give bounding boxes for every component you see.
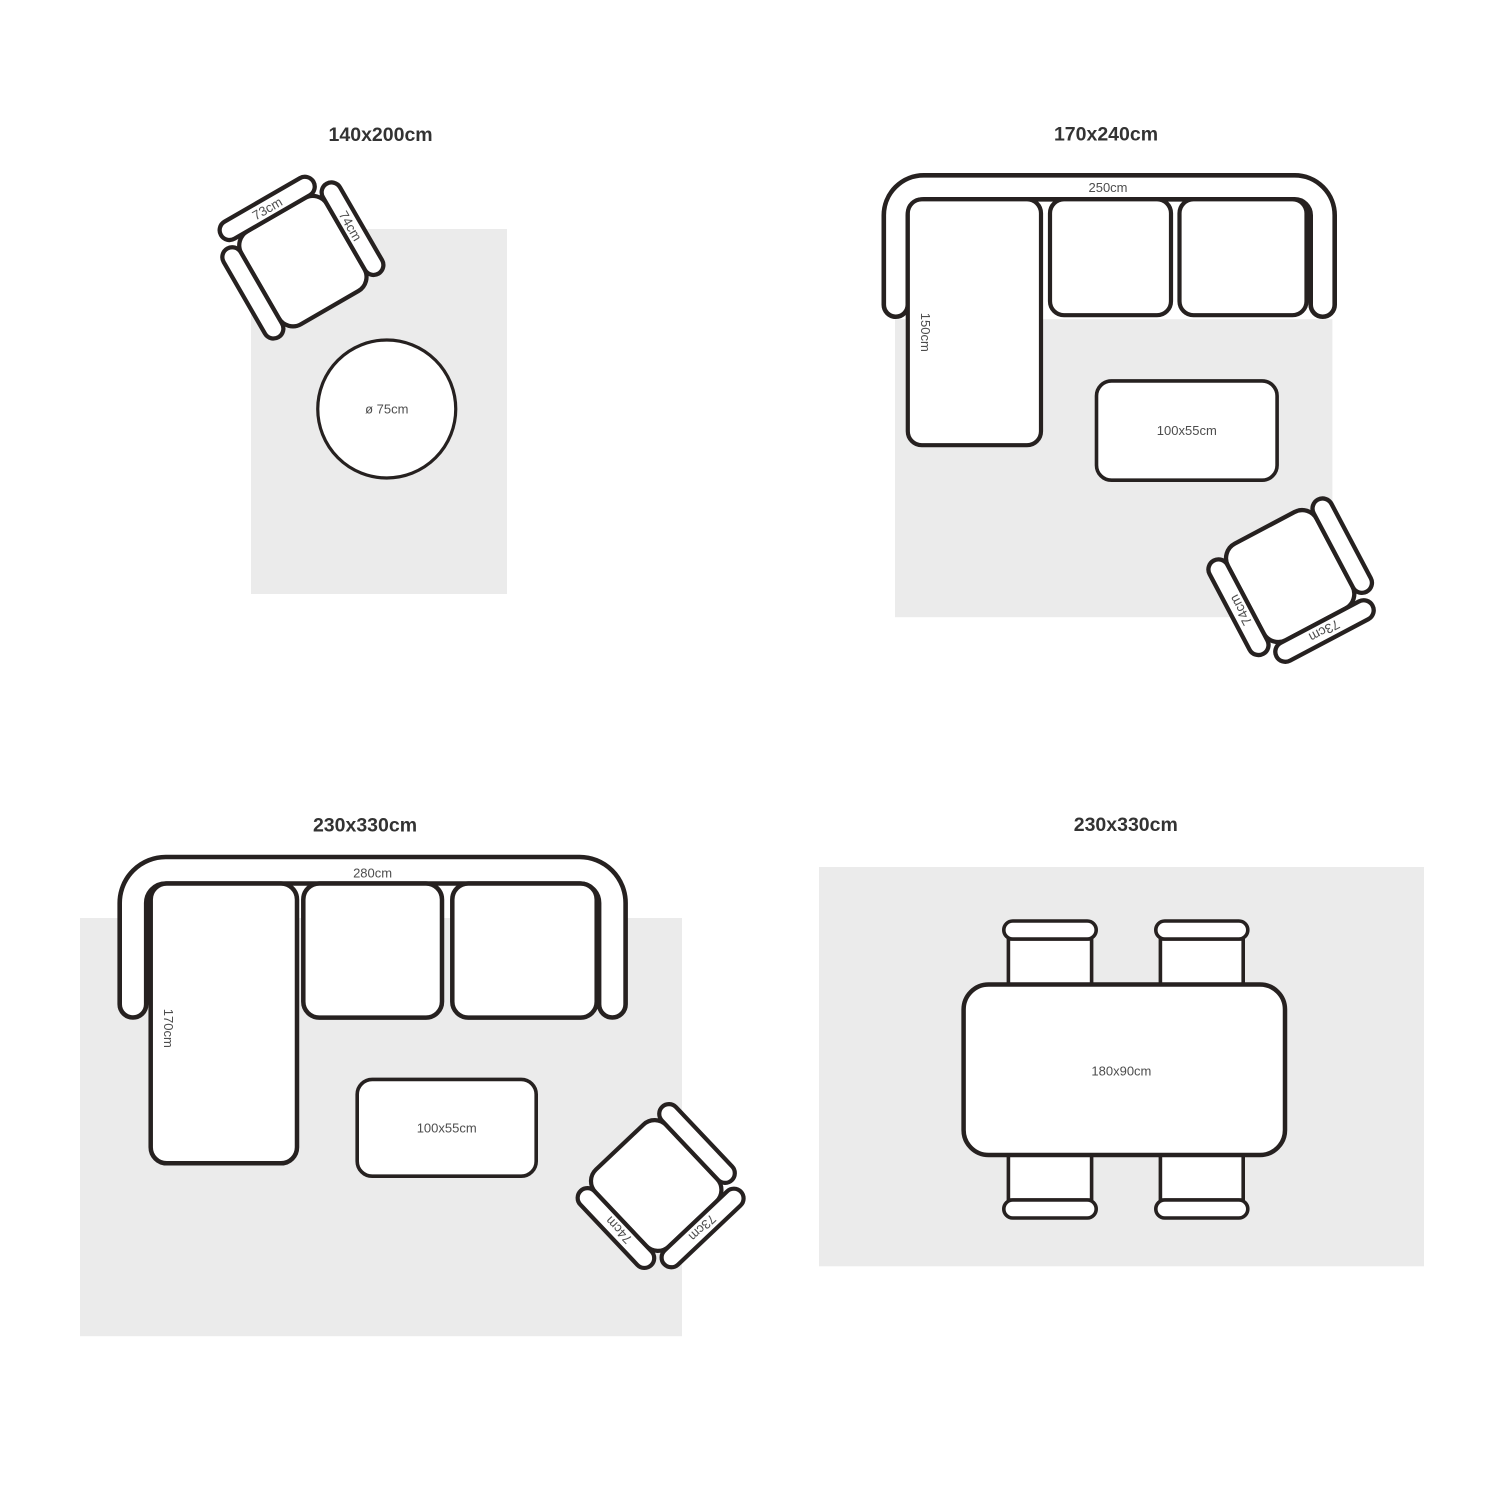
svg-text:230x330cm: 230x330cm (313, 815, 417, 837)
svg-text:100x55cm: 100x55cm (417, 1120, 477, 1135)
svg-text:150cm: 150cm (918, 313, 933, 352)
svg-text:100x55cm: 100x55cm (1157, 423, 1217, 438)
svg-text:280cm: 280cm (353, 865, 392, 880)
svg-text:180x90cm: 180x90cm (1091, 1064, 1151, 1079)
svg-text:230x330cm: 230x330cm (1074, 814, 1178, 836)
svg-text:ø 75cm: ø 75cm (365, 402, 408, 417)
svg-text:140x200cm: 140x200cm (329, 124, 433, 146)
svg-text:170cm: 170cm (161, 1009, 176, 1048)
svg-text:170x240cm: 170x240cm (1054, 124, 1158, 146)
svg-text:250cm: 250cm (1088, 180, 1127, 195)
